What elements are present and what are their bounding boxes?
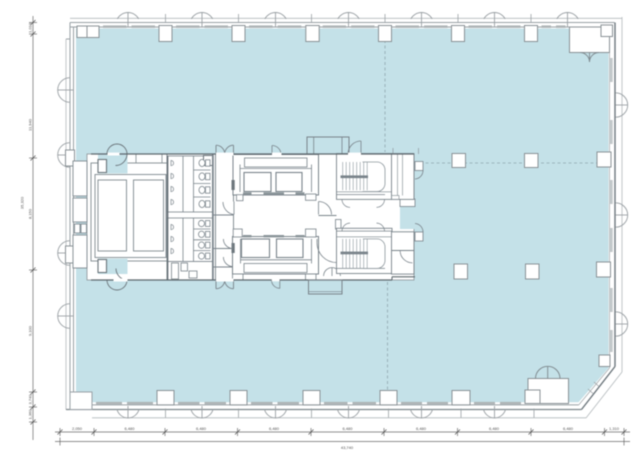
svg-text:9,100: 9,100 bbox=[28, 325, 33, 336]
svg-text:2,050: 2,050 bbox=[72, 426, 83, 431]
svg-text:1,310: 1,310 bbox=[609, 426, 620, 431]
svg-text:6,480: 6,480 bbox=[269, 426, 280, 431]
svg-text:43,740: 43,740 bbox=[341, 445, 354, 450]
svg-text:35,320: 35,320 bbox=[20, 196, 25, 209]
svg-text:11,940: 11,940 bbox=[28, 118, 33, 131]
svg-text:1,360: 1,360 bbox=[28, 409, 33, 420]
svg-text:6,480: 6,480 bbox=[342, 426, 353, 431]
svg-text:6,480: 6,480 bbox=[416, 426, 427, 431]
svg-text:6,480: 6,480 bbox=[489, 426, 500, 431]
svg-text:6,480: 6,480 bbox=[563, 426, 574, 431]
svg-text:6,480: 6,480 bbox=[196, 426, 207, 431]
svg-text:8,150: 8,150 bbox=[28, 208, 33, 219]
svg-text:6,480: 6,480 bbox=[124, 426, 135, 431]
svg-text:3,740: 3,740 bbox=[28, 394, 33, 405]
svg-text:1,010: 1,010 bbox=[28, 22, 33, 33]
